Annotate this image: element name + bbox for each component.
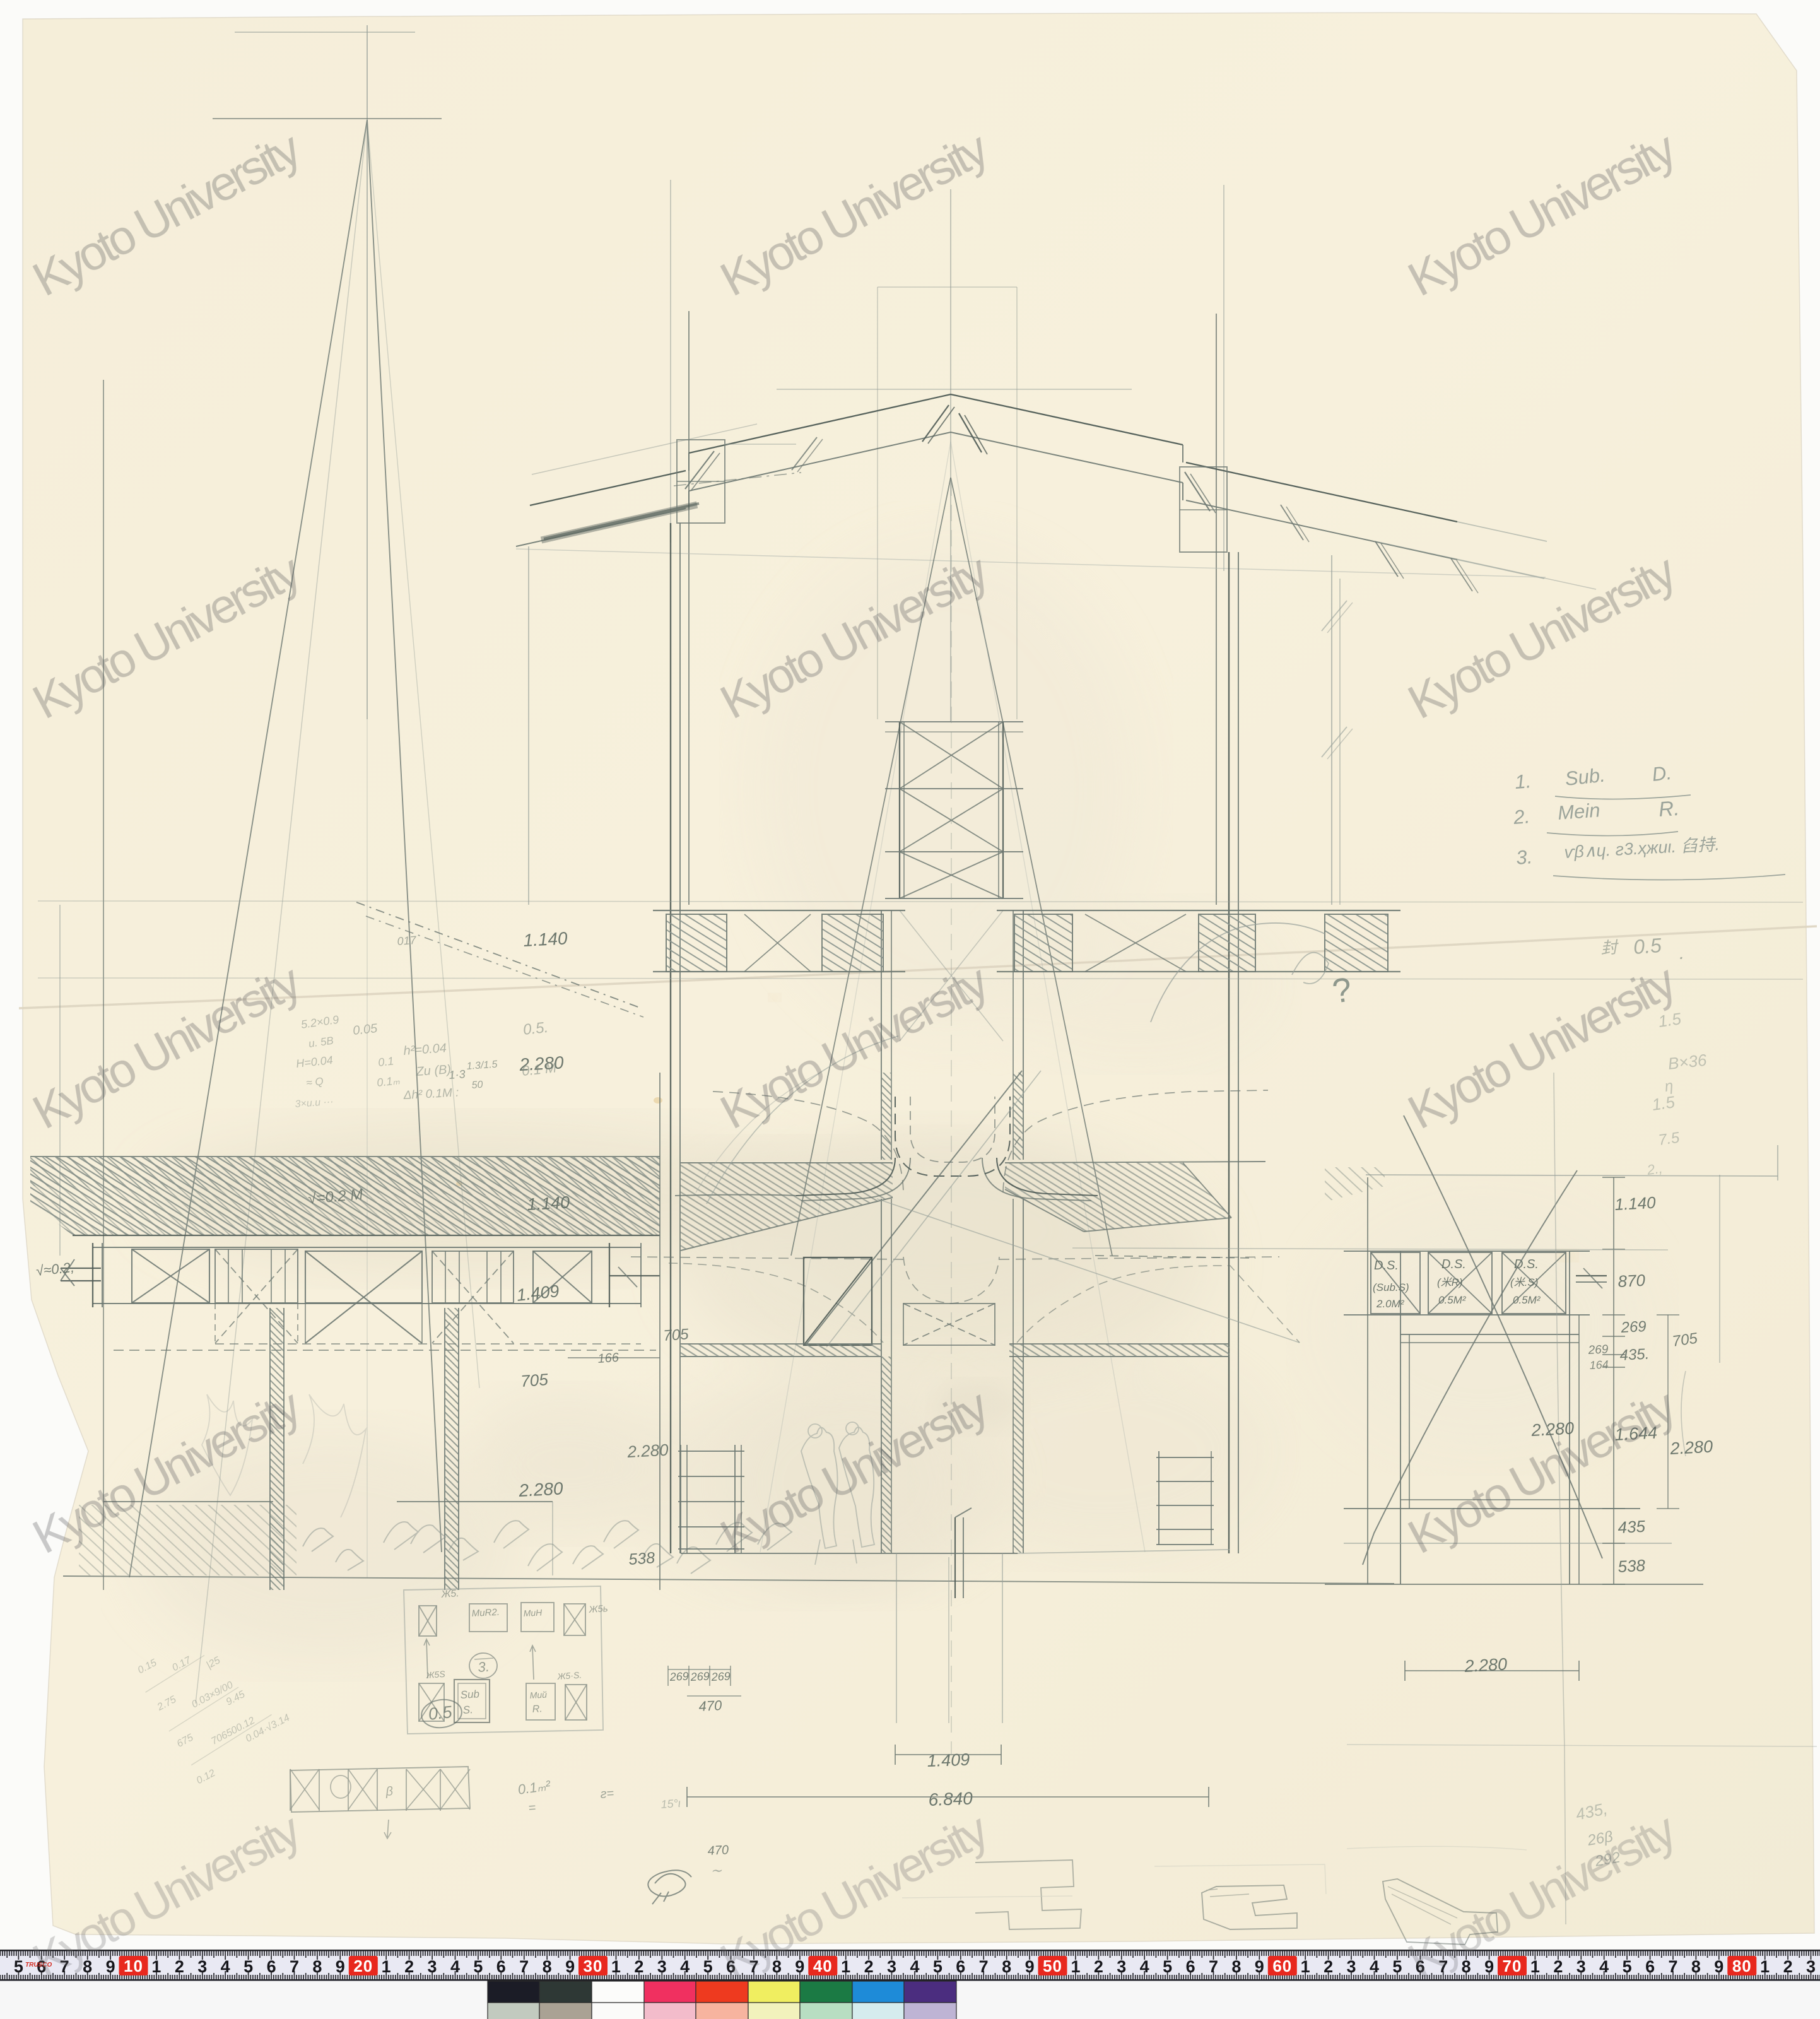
svg-text:(米.S): (米.S) xyxy=(1510,1276,1538,1288)
svg-text:1: 1 xyxy=(841,1957,850,1976)
svg-text:2: 2 xyxy=(864,1957,874,1976)
svg-text:г=: г= xyxy=(600,1787,614,1801)
svg-text:017: 017 xyxy=(397,934,417,948)
svg-text:.: . xyxy=(1679,943,1684,963)
svg-text:705: 705 xyxy=(1671,1330,1699,1350)
svg-text:1: 1 xyxy=(382,1957,391,1976)
svg-text:1: 1 xyxy=(1530,1957,1540,1976)
svg-text:2: 2 xyxy=(1094,1957,1103,1976)
svg-text:Ж5.: Ж5. xyxy=(440,1588,459,1600)
svg-text:470: 470 xyxy=(707,1843,729,1858)
svg-text:S.: S. xyxy=(462,1704,473,1716)
svg-text:1: 1 xyxy=(1760,1957,1770,1976)
svg-text:1: 1 xyxy=(1301,1957,1310,1976)
svg-text:0.5: 0.5 xyxy=(1633,934,1662,958)
svg-text:4: 4 xyxy=(221,1957,230,1976)
svg-text:Mein: Mein xyxy=(1557,799,1600,824)
svg-text:3.: 3. xyxy=(1515,845,1533,869)
svg-text:1.3/1.5: 1.3/1.5 xyxy=(466,1059,498,1072)
svg-text:435: 435 xyxy=(1617,1517,1646,1537)
svg-text:5: 5 xyxy=(1392,1957,1402,1976)
svg-text:∼: ∼ xyxy=(710,1863,722,1878)
svg-text:9: 9 xyxy=(565,1957,575,1976)
svg-text:9: 9 xyxy=(1484,1957,1494,1976)
svg-text:Sub: Sub xyxy=(460,1688,479,1701)
svg-text:D.S.: D.S. xyxy=(1441,1257,1466,1271)
svg-text:40: 40 xyxy=(813,1957,833,1975)
svg-text:6: 6 xyxy=(1645,1957,1655,1976)
svg-text:0.1: 0.1 xyxy=(377,1054,394,1069)
svg-text:9: 9 xyxy=(795,1957,804,1976)
svg-text:10: 10 xyxy=(124,1957,143,1975)
svg-text:2.280: 2.280 xyxy=(626,1440,669,1461)
svg-text:538: 538 xyxy=(628,1549,655,1569)
svg-text:7.5: 7.5 xyxy=(1657,1129,1681,1148)
svg-text:6: 6 xyxy=(496,1957,506,1976)
svg-text:1.140: 1.140 xyxy=(1614,1193,1657,1214)
svg-text:5: 5 xyxy=(244,1957,253,1976)
svg-text:705: 705 xyxy=(663,1326,690,1345)
svg-text:5: 5 xyxy=(703,1957,713,1976)
svg-text:Ж5S: Ж5S xyxy=(425,1669,446,1680)
svg-text:D.: D. xyxy=(1651,762,1672,786)
svg-text:4: 4 xyxy=(680,1957,690,1976)
svg-text:1: 1 xyxy=(1071,1957,1080,1976)
svg-text:3: 3 xyxy=(1117,1957,1126,1976)
svg-text:3: 3 xyxy=(1806,1957,1816,1976)
svg-text:0.5.: 0.5. xyxy=(522,1019,549,1039)
svg-text:2.280: 2.280 xyxy=(1464,1654,1508,1676)
svg-text:269: 269 xyxy=(710,1669,731,1683)
svg-text:1.140: 1.140 xyxy=(523,928,568,950)
svg-text:15°ι: 15°ι xyxy=(660,1797,681,1811)
svg-text:269: 269 xyxy=(1587,1343,1609,1357)
svg-text:4: 4 xyxy=(1599,1957,1609,1976)
svg-text:2.,: 2., xyxy=(1645,1160,1664,1178)
svg-text:70: 70 xyxy=(1503,1957,1522,1975)
svg-text:0.5M²: 0.5M² xyxy=(1438,1294,1467,1306)
svg-text:4: 4 xyxy=(450,1957,460,1976)
svg-text:1.409: 1.409 xyxy=(927,1750,970,1770)
svg-text:470: 470 xyxy=(698,1697,723,1714)
svg-text:5: 5 xyxy=(1163,1957,1172,1976)
svg-text:1.: 1. xyxy=(1514,770,1532,793)
svg-text:2: 2 xyxy=(634,1957,643,1976)
svg-text:60: 60 xyxy=(1272,1957,1292,1975)
svg-text:3: 3 xyxy=(197,1957,207,1976)
svg-text:7: 7 xyxy=(290,1957,299,1976)
svg-text:166: 166 xyxy=(597,1351,620,1366)
svg-text:2: 2 xyxy=(404,1957,414,1976)
svg-text:Sub.: Sub. xyxy=(1564,763,1606,789)
svg-text:1: 1 xyxy=(151,1957,161,1976)
svg-text:R.: R. xyxy=(1658,796,1681,821)
svg-text:269: 269 xyxy=(1620,1318,1647,1336)
svg-text:8: 8 xyxy=(1231,1957,1241,1976)
svg-text:3: 3 xyxy=(1346,1957,1356,1976)
svg-text:705: 705 xyxy=(520,1370,549,1391)
svg-text:6: 6 xyxy=(1186,1957,1195,1976)
svg-text:0.1ₘ: 0.1ₘ xyxy=(376,1074,401,1089)
svg-text:8: 8 xyxy=(312,1957,322,1976)
svg-text:30: 30 xyxy=(584,1957,603,1975)
svg-text:5: 5 xyxy=(1623,1957,1632,1976)
svg-text:1.140: 1.140 xyxy=(527,1192,570,1213)
svg-text:0.05: 0.05 xyxy=(352,1021,379,1038)
svg-text:3.: 3. xyxy=(478,1659,490,1675)
svg-text:6: 6 xyxy=(956,1957,965,1976)
svg-text:Zu (B): Zu (B) xyxy=(415,1062,452,1079)
svg-text:1.5: 1.5 xyxy=(1651,1092,1677,1114)
svg-text:2: 2 xyxy=(1783,1957,1793,1976)
svg-text:2: 2 xyxy=(1553,1957,1563,1976)
svg-text:20: 20 xyxy=(353,1957,373,1975)
svg-text:МиН: МиН xyxy=(523,1607,543,1618)
svg-text:7: 7 xyxy=(979,1957,989,1976)
svg-text:5: 5 xyxy=(933,1957,942,1976)
svg-text:2.: 2. xyxy=(1512,805,1530,828)
svg-text:164: 164 xyxy=(1589,1358,1609,1372)
svg-text:D.S.: D.S. xyxy=(1514,1257,1539,1271)
svg-text:7: 7 xyxy=(1668,1957,1677,1976)
svg-text:≈ Q: ≈ Q xyxy=(305,1075,324,1089)
svg-text:8: 8 xyxy=(1691,1957,1701,1976)
svg-text:6: 6 xyxy=(267,1957,276,1976)
svg-text:5: 5 xyxy=(14,1957,23,1976)
svg-text:269: 269 xyxy=(690,1669,710,1683)
svg-text:Мий: Мий xyxy=(529,1690,547,1700)
svg-text:Ж5ь: Ж5ь xyxy=(588,1603,608,1615)
svg-text:3: 3 xyxy=(1576,1957,1586,1976)
svg-text:5: 5 xyxy=(473,1957,483,1976)
svg-text:0.5M²: 0.5M² xyxy=(1513,1294,1541,1306)
svg-text:2: 2 xyxy=(175,1957,184,1976)
svg-text:Ж5·S.: Ж5·S. xyxy=(556,1669,582,1681)
svg-text:МиR2.: МиR2. xyxy=(471,1607,500,1619)
svg-text:538: 538 xyxy=(1617,1556,1646,1576)
svg-text:3: 3 xyxy=(427,1957,437,1976)
svg-text:9: 9 xyxy=(336,1957,345,1976)
svg-text:269: 269 xyxy=(669,1669,689,1683)
svg-text:3: 3 xyxy=(887,1957,896,1976)
svg-text:8: 8 xyxy=(543,1957,552,1976)
svg-text:β: β xyxy=(385,1784,394,1799)
svg-text:(Sub.S): (Sub.S) xyxy=(1373,1281,1409,1293)
svg-text:4: 4 xyxy=(910,1957,919,1976)
svg-text:0.5: 0.5 xyxy=(427,1702,453,1724)
svg-text:870: 870 xyxy=(1617,1271,1646,1291)
svg-text:50: 50 xyxy=(1043,1957,1062,1975)
svg-text:7: 7 xyxy=(1209,1957,1218,1976)
svg-text:9: 9 xyxy=(106,1957,115,1976)
svg-text:2: 2 xyxy=(1324,1957,1333,1976)
svg-text:D.S.: D.S. xyxy=(1374,1259,1399,1273)
svg-text:7: 7 xyxy=(519,1957,529,1976)
svg-text:1: 1 xyxy=(611,1957,621,1976)
svg-text:3: 3 xyxy=(657,1957,667,1976)
svg-text:80: 80 xyxy=(1732,1957,1752,1975)
svg-text:9: 9 xyxy=(1714,1957,1723,1976)
svg-text:9: 9 xyxy=(1025,1957,1035,1976)
svg-text:4: 4 xyxy=(1370,1957,1379,1976)
svg-text:(米R): (米R) xyxy=(1437,1276,1463,1288)
svg-text:=: = xyxy=(528,1801,536,1815)
svg-text:435.: 435. xyxy=(1619,1346,1650,1364)
svg-text:8: 8 xyxy=(1002,1957,1011,1976)
svg-text:50: 50 xyxy=(471,1080,483,1091)
svg-text:4: 4 xyxy=(1140,1957,1149,1976)
svg-text:2.280: 2.280 xyxy=(1669,1437,1713,1458)
svg-text:R.: R. xyxy=(532,1704,543,1715)
svg-text:9: 9 xyxy=(1255,1957,1264,1976)
svg-text:2.280: 2.280 xyxy=(518,1478,564,1500)
